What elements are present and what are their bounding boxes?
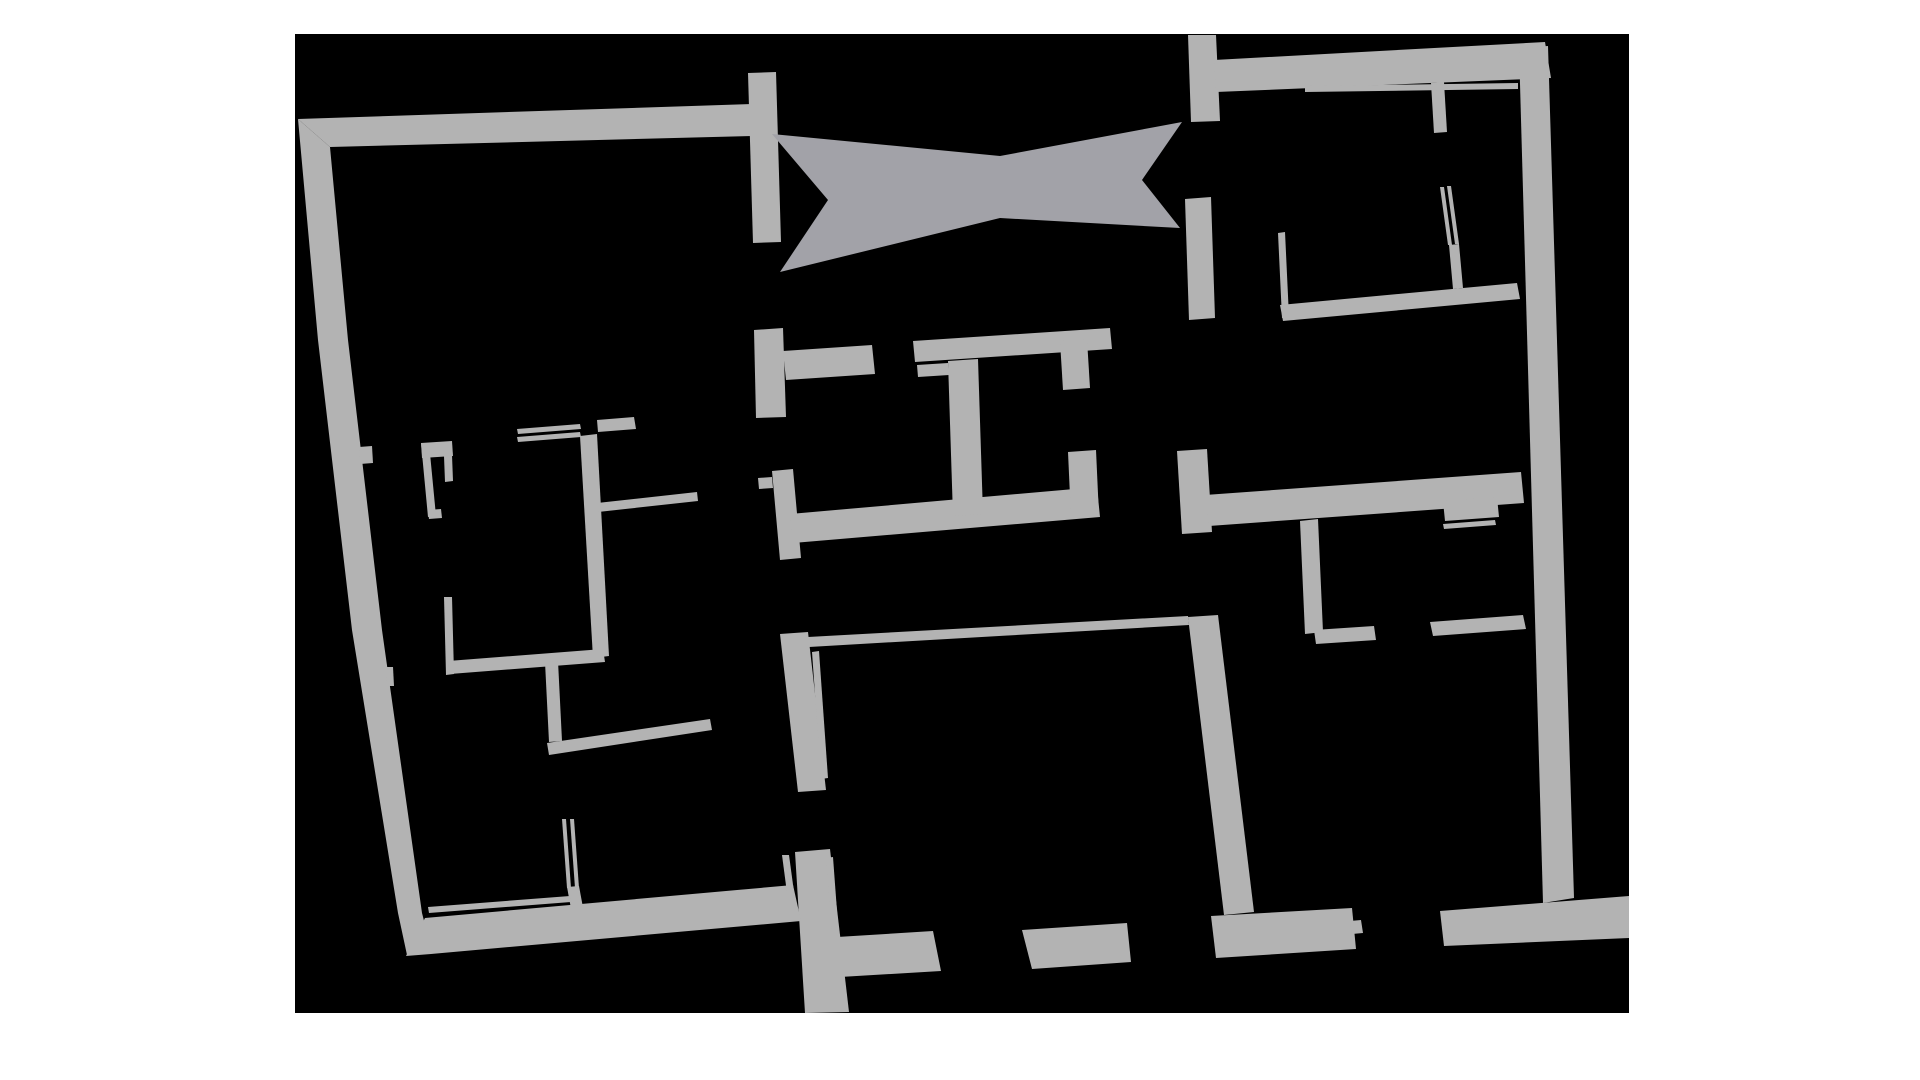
entry-pier-lower [754,328,786,418]
entry-pier-upper [748,72,781,243]
center-pier [1060,339,1090,390]
recess-block [1443,497,1499,521]
entry-wall-right-lower [1185,197,1215,320]
fixture-foot [428,509,442,519]
bottom-wall-center [1022,923,1131,969]
center-wall-stub [917,363,949,377]
hall-wall-horizontal [783,345,875,380]
center-wall-vertical [948,359,983,516]
left-wall-bump-b [386,667,394,686]
corridor-left-stub [758,477,773,489]
corridor-pier [1177,449,1212,534]
corridor-riser [1068,450,1099,518]
floor-plan-svg [0,0,1920,1080]
bottom-wall-porch [837,931,941,977]
left-wall-bump-a [359,446,373,464]
page [0,0,1920,1080]
bottom-wall-chip [1350,920,1363,934]
fixture-right [444,455,453,482]
